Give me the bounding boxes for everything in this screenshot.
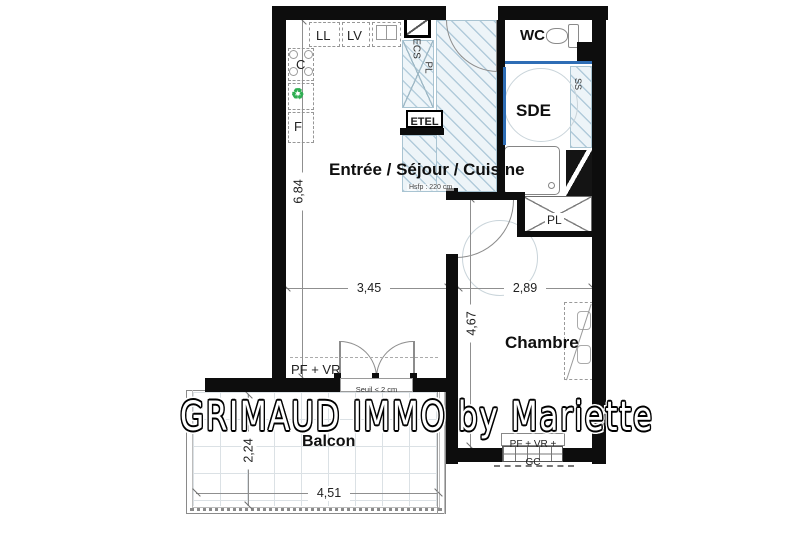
towel-rail-label: SS [573, 74, 583, 94]
living-window-label: PF + VR [291, 362, 341, 377]
balcony-rail-dots [190, 508, 442, 511]
dim-living-width: 3,45 [348, 281, 390, 296]
dim-bedroom-length: 4,67 [465, 305, 480, 343]
bedroom-closet-label: PL [545, 211, 564, 229]
dim-living-length: 6,84 [292, 173, 307, 211]
bedroom-closet-label-text: PL [545, 213, 564, 227]
fridge-label: F [294, 119, 302, 134]
wall [400, 128, 444, 135]
sde-door-line [503, 67, 506, 145]
bed-pillow [577, 345, 591, 364]
duct-box [577, 42, 593, 62]
etel-label: ETEL [410, 116, 438, 128]
toilet-bowl [546, 28, 568, 44]
wc-threshold [505, 61, 592, 64]
room-label-chambre: Chambre [505, 333, 579, 353]
agency-watermark: GRIMAUD IMMO by Mariette [180, 394, 654, 440]
wall [563, 448, 606, 462]
washing-machine-label: LL [316, 28, 330, 43]
wall [517, 192, 525, 236]
wall [272, 6, 446, 20]
wall [446, 448, 502, 462]
dim-balcony-width: 4,51 [308, 486, 350, 501]
french-door-right-arc [376, 341, 413, 378]
etel-box: ETEL [406, 110, 443, 128]
door-frame-dashed-line [290, 357, 438, 358]
wall [456, 192, 518, 200]
dishwasher-label: LV [347, 28, 362, 43]
duct-box [566, 150, 592, 196]
hall-closet-label: PL [423, 58, 434, 78]
wall [272, 6, 286, 392]
wall [413, 378, 448, 392]
room-label-living: Entrée / Séjour / Cuisine [329, 160, 525, 180]
wall [205, 378, 340, 392]
sink-basin [376, 25, 397, 40]
threshold-strip: Seuil < 2 cm [340, 378, 413, 392]
ceiling-height-note: Hsfp : 220 cm [407, 184, 454, 191]
recycle-icon: ♻ [291, 85, 304, 103]
water-heater-label: ECS [411, 34, 422, 64]
room-label-wc: WC [520, 27, 545, 44]
dim-bedroom-width: 2,89 [504, 281, 546, 296]
threshold-note: Seuil < 2 cm [356, 385, 397, 394]
room-label-sde: SDE [516, 101, 551, 121]
cooktop-label: C [296, 57, 305, 72]
floor-plan: ♻ ETEL Seuil < [0, 0, 799, 533]
shower-drain [548, 182, 555, 189]
